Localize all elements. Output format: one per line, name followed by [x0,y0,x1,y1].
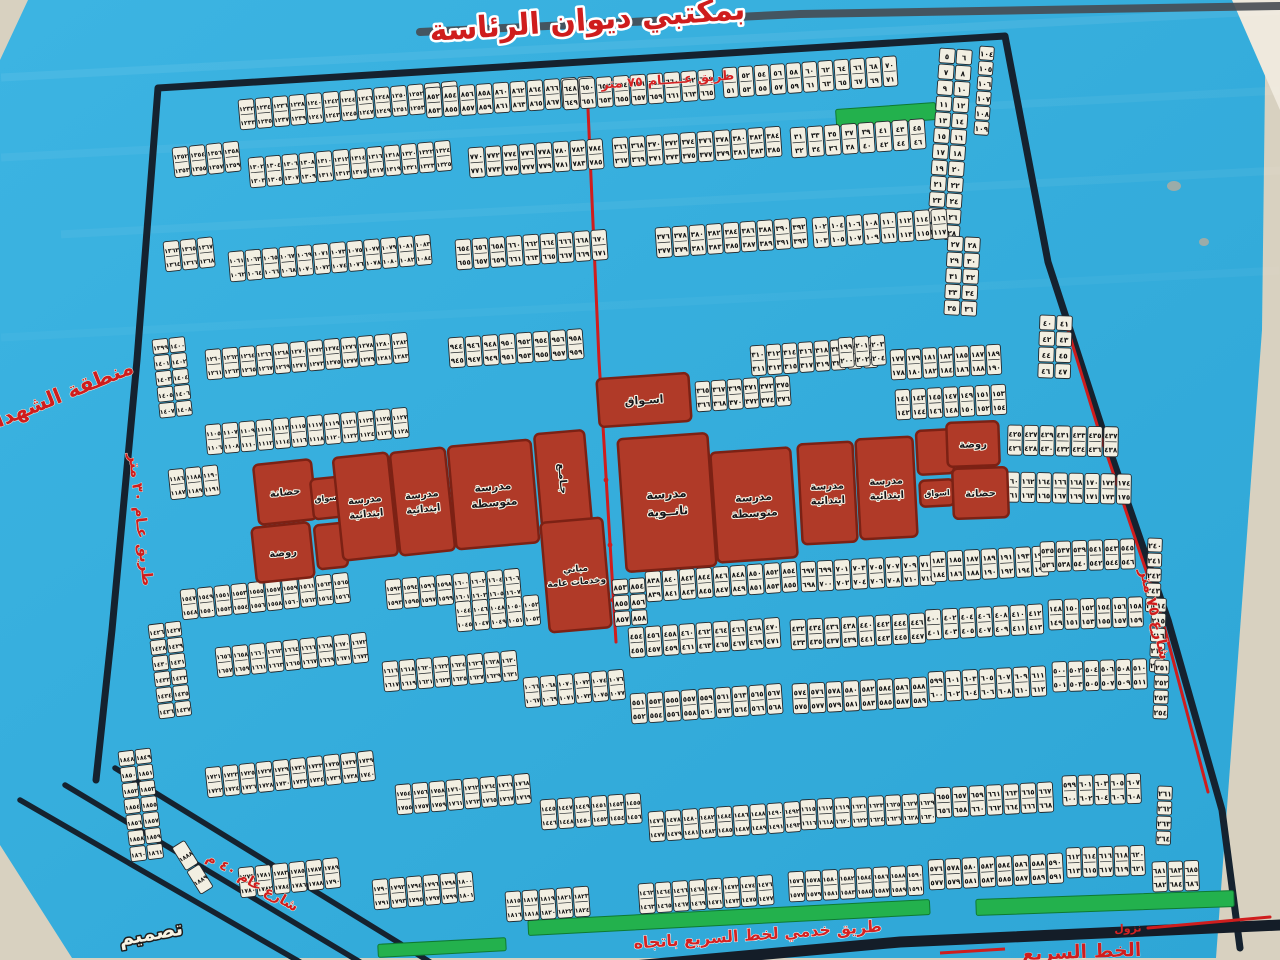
plot-cell: ١٤٢٩ [167,637,184,653]
plot-cell: ٣٧٢٣٧٣ [663,133,680,164]
plot-cell: ٣٧٨٣٧٩ [672,226,689,257]
plot-cell: ٨٥٠٨٥١ [747,564,764,595]
svg-text:١٨٩: ١٨٩ [987,349,1001,359]
plot-cell: ٥٥٥٥٥٦ [664,691,681,722]
svg-text:٣٢: ٣٢ [795,146,805,156]
svg-text:٥٨٧: ٥٨٧ [896,696,910,706]
plot-cell: ٦٠٧٦٠٨ [996,668,1013,699]
svg-text:٦٤٨: ٦٤٨ [564,83,578,93]
svg-text:٨٥١: ٨٥١ [749,582,763,592]
svg-text:٩٥٣: ٩٥٣ [518,351,532,361]
plot-cell: ١٤٧٤١٤٧٥ [740,876,757,907]
svg-text:١٧٠: ١٧٠ [1085,478,1098,487]
plot-cell: ٤٢٥٤٢٦ [1007,425,1022,455]
plot-cell: ١٦٦١٦٧ [1052,473,1067,503]
plot-cell: ١٥٩٤١٥٩٥ [402,577,420,608]
svg-text:١٦١٧: ١٦١٧ [384,681,400,689]
facility-middle-school-2: مدرسةمتوسطة [710,447,797,562]
plot-cell: ١٠٧٠١٠٧١ [557,674,575,705]
plot-cell: ٦٩٧٦٩٨ [800,561,817,592]
svg-text:١٨٦: ١٨٦ [956,364,970,374]
svg-text:١٨٩: ١٨٩ [982,553,996,563]
svg-text:١٧٦٤: ١٧٦٤ [480,783,496,791]
plot-cell: ١٢٥٢١٢٥٣ [407,84,425,115]
plot-cell: ٨٤٠٨٤١ [662,570,679,601]
svg-text:١٨٠١: ١٨٠١ [459,892,474,900]
plot-cell: ٤٣١٤٣٢ [1055,426,1070,456]
plot-cell: ٨٦٠٨٦١ [493,82,510,113]
svg-text:٥٤١: ٥٤١ [1089,544,1102,553]
svg-text:٦٦٤: ٦٦٤ [541,238,555,248]
svg-text:٢٧: ٢٧ [951,240,961,249]
svg-text:٧٧٦: ٧٧٦ [520,148,534,158]
svg-text:٦١٢: ٦١٢ [1032,684,1046,694]
plot-cell: ١٧٣٩١٧٤٠ [357,750,375,781]
plot-cell: ١٧٣٧١٧٣٨ [340,752,358,783]
plot-cell: ١٦١٦١٦١٧ [382,661,400,692]
plot-cell: ٦٥٦٦٥٧ [472,238,489,269]
plot-cell: ١٥١١٥٢ [975,385,991,416]
plot-cell: ٥٨٠٥٨١ [962,857,979,888]
svg-text:٣٦: ٣٦ [964,305,974,314]
svg-text:١٠٦٣: ١٠٦٣ [246,256,262,264]
svg-text:٨٥٥: ٨٥٥ [444,104,458,114]
plot-cell: ٤٣٢٤٣٣ [790,619,807,650]
plot-cell: ٢٥٤ [1153,705,1168,719]
svg-text:١٢٣٦: ١٢٣٦ [273,102,289,110]
svg-text:٦٧١: ٦٧١ [593,248,607,258]
svg-text:٤٢٧: ٤٢٧ [1024,430,1038,439]
svg-text:٦٦٢: ٦٦٢ [524,239,538,249]
plot-cell: ١٧٩١٨٠ [906,348,922,379]
facility-primary-school-1: مدرسةابتدائية [333,452,398,560]
facility-label-market-right: اسواق [924,488,950,498]
plot-cell: ٤٥٦٤٥٧ [645,626,662,657]
plot-cell: ٣٩٠٣٩١ [774,219,791,250]
plot-cell: ١٢٦٢١٢٦٣ [222,347,240,378]
plot-cell: ١٨٦١ [147,843,164,859]
svg-text:١٤٧٤: ١٤٧٤ [740,882,756,890]
svg-text:١٠٨١: ١٠٨١ [398,242,413,250]
plot-cell: ١٨٩١٩٠ [986,344,1002,375]
plot-cell: ١٦٢٠١٦٢١ [416,658,434,689]
plot-cell: ١٠٧٢١٠٧٣ [574,672,592,703]
svg-text:٣١٣: ٣١٣ [768,362,782,372]
svg-text:١٥٧٨: ١٥٧٨ [806,877,822,885]
svg-text:١٢٨١: ١٢٨١ [376,354,391,362]
svg-text:١٤٥١: ١٤٥١ [592,802,607,810]
svg-text:٧٧١: ٧٧١ [470,165,484,175]
plot-cell: ١٤٣٠ [152,655,169,671]
plot-cell: ١٧٢٣١٧٢٤ [222,765,240,796]
svg-text:٨٥٨: ٨٥٨ [632,613,647,623]
svg-text:١٧٩٦: ١٧٩٦ [424,881,440,889]
svg-text:٣٩٠: ٣٩٠ [775,223,789,233]
svg-text:١٤٨٠: ١٤٨٠ [683,815,698,823]
svg-text:١٩٤: ١٩٤ [1017,565,1030,575]
svg-text:٣٨: ٣٨ [846,142,856,152]
svg-text:٧٨١: ٧٨١ [555,160,569,170]
plot-cell: ١٠٥ [978,61,993,76]
plot-cell: ٥٩٩٦٠٠ [928,671,945,702]
plot-cell: ٦٥٤٦٥٥ [455,239,472,270]
plot-cell: ٤٧ [1055,364,1071,379]
svg-text:٥٣٩: ٥٣٩ [1073,545,1087,554]
svg-text:٣٥: ٣٥ [828,129,837,139]
plot-cell: ١٧٣٥١٧٣٦ [323,754,341,785]
svg-text:١٦٢٧: ١٦٢٧ [469,674,485,682]
svg-text:٨٥٦: ٨٥٦ [631,597,646,607]
svg-text:٧٧٧: ٧٧٧ [521,162,535,172]
svg-text:٤٣٥: ٤٣٥ [1088,431,1101,440]
svg-text:٤٦: ٤٦ [913,137,923,147]
plot-cell: ٣١٤٣١٥ [782,343,798,374]
svg-text:٣٧٥: ٣٧٥ [682,151,696,161]
plot-cell: ١٧٨٧١٧٨٨ [306,859,324,890]
plot-cell: ٥٠٨٥٠٩ [1116,659,1131,689]
plot-cell: ١٥٩٦١٥٩٧ [419,576,437,607]
svg-text:١٨٢: ١٨٢ [924,366,938,376]
svg-text:٧٧٤: ٧٧٤ [503,149,517,159]
svg-text:١٠٧٣: ١٠٧٣ [330,248,346,256]
svg-text:٤٠٤: ٤٠٤ [960,612,973,622]
plot-cell: ١٧٦٢١٧٦٣ [463,778,481,809]
svg-text:١٧٦٢: ١٧٦٢ [464,784,480,792]
svg-text:١٤٨٨: ١٤٨٨ [750,810,766,818]
plot-cell: ٨٤٤٨٤٥ [696,567,713,598]
svg-text:١٢٧٧: ١٢٧٧ [343,357,359,365]
svg-text:٣١: ٣١ [949,272,958,281]
plot-cell: ١٦ [950,129,966,145]
svg-text:١٢٨٣: ١٢٨٣ [393,353,409,361]
svg-text:١٨٣: ١٨٣ [931,556,945,566]
svg-text:١٦٠٣: ١٦٠٣ [472,592,488,600]
svg-text:١١١٣: ١١١٣ [274,424,290,432]
svg-text:٤٥: ٤٥ [912,123,921,133]
svg-text:٢٠٤: ٢٠٤ [872,353,886,363]
svg-text:٤٠٧: ٤٠٧ [978,625,992,635]
svg-text:١٨٥: ١٨٥ [948,555,961,565]
plot-cell: ١٤٨٤١٤٨٥ [716,806,733,837]
svg-text:١٥٢: ١٥٢ [977,404,991,414]
svg-text:١٤٤٧: ١٤٤٧ [558,804,574,812]
svg-text:٥٣: ٥٣ [742,84,752,94]
svg-text:٧٨٤: ٧٨٤ [588,143,602,153]
svg-text:٣٨٣: ٣٨٣ [708,242,722,252]
svg-text:١٢٣٨: ١٢٣٨ [290,101,306,109]
svg-text:١٠٥٢: ١٠٥٢ [524,601,540,609]
svg-text:١٢٥١: ١٢٥١ [392,106,407,114]
plot-cell: ٤٣٥٤٣٦ [1087,426,1102,456]
svg-text:٤٢: ٤٢ [879,140,889,150]
plot-cell: ١١٠٧١١٠٨ [222,422,240,453]
plot-cell: ٥٠٤٥٠٥ [1084,660,1099,690]
plot-cell: ١١١٧١١١٨ [307,415,325,446]
svg-text:٩٥٦: ٩٥٦ [551,334,565,344]
svg-text:٣١٧: ٣١٧ [800,360,814,370]
svg-text:١١٠٧: ١١٠٧ [223,429,239,437]
svg-text:١١٢١: ١١٢١ [341,418,356,426]
plot-cell: ١١٠١١١ [880,212,897,243]
svg-text:١٤٧٧: ١٤٧٧ [758,895,774,903]
svg-text:١٥٤: ١٥٤ [993,403,1006,413]
plot-cell: ٥٧٦٥٧٧ [928,859,945,890]
svg-text:١٧٦١: ١٧٦١ [448,800,463,808]
plot-cell: ٢٩ [946,252,962,267]
plot-cell: ١٤٣٦ [158,703,175,719]
plot-cell: ٦٥٠٦٥١ [579,78,596,109]
svg-text:١٧٦٦: ١٧٦٦ [497,781,513,789]
svg-text:٨٤١: ٨٤١ [664,588,678,598]
svg-text:١٠٤٧: ١٠٤٧ [474,620,490,628]
svg-text:١٤٧٧: ١٤٧٧ [650,831,666,839]
svg-text:٤٧١: ٤٧١ [766,636,780,646]
svg-text:٥٨٨: ٥٨٨ [912,681,926,691]
svg-text:٨٦٦: ٨٦٦ [545,83,559,93]
svg-text:٨٥٢: ٨٥٢ [427,91,441,101]
svg-text:١٤٦٩: ١٤٦٩ [691,900,707,908]
plot-cell: ٣٨٢٣٨٣ [706,223,723,254]
plot-cell: ١٨٥٩ [145,827,162,843]
plot-cell: ٤٦٦٤٦٧ [730,620,747,651]
svg-text:١٤٦٥: ١٤٦٥ [657,902,673,910]
plot-cell: ١٤٧٢١٤٧٣ [723,877,740,908]
svg-text:٨٥٩: ٨٥٩ [478,102,492,112]
plot-cell: ١٨٥٣ [139,780,156,796]
svg-text:٥٥٧: ٥٥٧ [682,694,696,704]
svg-text:٦٥٦: ٦٥٦ [473,242,487,252]
plot-cell: ٦٠١٦٠٢ [945,670,962,701]
svg-text:٣٦٩: ٣٦٩ [631,154,645,164]
plot-cell: ٤٧٠٤٧١ [764,617,781,648]
svg-text:٧٧٥: ٧٧٥ [504,163,518,173]
plot-cell: ٤٣٤٤ [892,120,909,151]
plot-cell: ١٦٦٠١٦٦١ [249,643,267,674]
svg-text:٤٣٩: ٤٣٩ [843,635,857,645]
plot-cell: ١٠٧٥١٠٧٦ [347,240,365,271]
svg-text:١٤٥٤: ١٤٥٤ [610,815,626,823]
svg-text:١٠٩: ١٠٩ [974,124,989,134]
exit-ramp-label: نزول [1114,922,1142,936]
plot-cell: ١٦٢١١٦٢٢ [851,797,868,828]
plot-cell: ٥٥٧٥٥٨ [681,689,698,720]
svg-text:١٢٣٣: ١٢٣٣ [240,119,256,127]
svg-text:٦٦٨: ٦٦٨ [575,235,589,245]
svg-text:١٦١٩: ١٦١٩ [401,680,417,688]
svg-text:٣٨١: ٣٨١ [691,243,705,253]
plot-cell: ٣٣٣٤ [807,126,824,157]
svg-text:١١٤: ١١٤ [915,214,929,224]
svg-text:٣٤: ٣٤ [965,289,974,298]
svg-text:٢٩: ٢٩ [950,256,960,265]
plot-cell: ٧٨٠٧٨١ [553,141,570,172]
plot-cell: ١٤٩٢١٤٩٣ [784,801,801,832]
svg-text:٩٥٥: ٩٥٥ [535,350,549,360]
plot-cell: ٢٤٠ [1148,538,1163,552]
svg-text:٥٠٥: ٥٠٥ [1085,679,1098,688]
svg-text:١٧٩٥: ١٧٩٥ [408,896,424,904]
plot-cell: ١٥٠١٥١ [1064,599,1079,629]
plot-cell: ١٣٠٦١٣٠٧ [282,154,300,185]
svg-text:٥٥٨: ٥٥٨ [683,708,697,718]
svg-text:٨٥٠: ٨٥٠ [748,568,762,578]
svg-text:٥٥٤: ٥٥٤ [649,710,663,720]
plot-cell: ٥٤٣٥٤٤ [1104,539,1119,569]
svg-text:١٦٢٩: ١٦٢٩ [486,672,502,680]
plot-cell: ١٠ [954,81,970,97]
svg-text:٧٠٦: ٧٠٦ [870,576,884,586]
svg-text:٣٣: ٣٣ [811,130,821,140]
svg-text:٥٧٦: ٥٧٦ [810,687,824,697]
plot-cell: ٢٤١ [1147,553,1162,567]
plot-cell: ٦٦٦٧ [850,58,866,89]
svg-text:٨٦٣: ٨٦٣ [512,99,526,109]
plot-cell: ١٣٦٣١٣٦٤ [163,240,181,271]
plot-cell: ٥٦١٥٦٢ [715,687,732,718]
plot-cell: ٢٥٢ [1154,675,1169,689]
plot-cell: ١٣٥٤١٣٥٥ [189,145,207,176]
svg-text:٦٦٣: ٦٦٣ [683,89,697,99]
svg-text:١٣١٨: ١٣١٨ [384,151,400,159]
svg-text:١٧: ١٧ [936,148,946,158]
plot-cell: ٦٥٨٦٥٩ [489,237,506,268]
plot-cell: ٤٣٤٤٣٥ [807,618,824,649]
plot-cell: ١٠٦٩١٠٧٠ [296,245,314,276]
svg-text:١٥٧: ١٥٧ [1113,616,1127,625]
plot-cell: ٨٤٦٨٤٧ [713,566,730,597]
svg-text:١٦٣٠: ١٦٣٠ [920,813,935,821]
svg-text:١٤٩٠: ١٤٩٠ [767,809,782,817]
plot-cell: ٤٤ [1038,347,1054,362]
plot-cell: ٣٥٣٦ [824,125,841,156]
svg-text:٥٧٨: ٥٧٨ [827,686,841,696]
plot-cell: ٥٥٩٥٦٠ [698,688,715,719]
svg-text:١٤٥٦: ١٤٥٦ [626,813,642,821]
plot-cell: ١٨٧١٨٨ [970,345,986,376]
svg-text:٨٥٤: ٨٥٤ [443,90,457,100]
svg-text:٩٥١: ٩٥١ [501,352,515,362]
svg-text:٤٥٩: ٤٥٩ [664,643,678,653]
svg-text:١٦٢٥: ١٦٢٥ [885,801,901,809]
svg-text:١٩٢: ١٩٢ [1000,566,1014,576]
svg-text:١٨٣: ١٨٣ [939,351,953,361]
svg-text:٦١١: ٦١١ [1031,670,1044,680]
plot-cell: ١٦٧٠١٦٧١ [333,634,351,665]
plot-cell: ١٧٧١٧٨ [890,349,906,380]
plot-cell: ١٧٣٣١٧٣٤ [306,756,324,787]
plot-cell: ١٠٨١٠٩ [863,213,880,244]
svg-text:١٨١٨: ١٨١٨ [524,910,540,918]
svg-text:١٥٨٨: ١٥٨٨ [890,872,906,880]
svg-text:٦٧: ٦٧ [854,77,864,87]
plot-cell: ١٧٥٨١٧٥٩ [429,781,447,812]
svg-text:١٤٦٦: ١٤٦٦ [673,887,689,895]
svg-text:٣٧١: ٣٧١ [648,153,662,163]
plot-cell: ١٥٥٣١٥٥٤ [231,583,249,614]
plot-cell: ١٤٧٦١٤٧٧ [648,811,665,842]
svg-text:٦٥٠: ٦٥٠ [580,82,594,92]
svg-text:٥٦: ٥٦ [773,68,783,78]
plot-cell: ٥٨٥٩ [786,63,802,94]
svg-text:١١٢: ١١٢ [898,216,912,226]
svg-text:٣٦٧: ٣٦٧ [712,384,726,394]
svg-text:٤٢٨: ٤٢٨ [1024,444,1038,453]
svg-text:٤٤٧: ٤٤٧ [911,631,925,641]
svg-text:١٧٦٥: ١٧٦٥ [482,797,498,805]
svg-text:٦١٧: ٦١٧ [1099,865,1113,874]
plot-cell: ١٥٩٠١٥٩١ [907,865,924,896]
svg-text:١٤٩: ١٤٩ [1049,618,1063,627]
svg-text:٢٠٢: ٢٠٢ [856,354,870,364]
svg-text:١٧٩٠: ١٧٩٠ [373,885,388,893]
svg-text:١٠٥١: ١٠٥١ [508,617,523,625]
svg-text:١٤٦٧: ١٤٦٧ [674,901,690,909]
plot-cell: ١٥٨٨١٥٨٩ [890,866,907,897]
svg-text:٦٠٧: ٦٠٧ [997,672,1011,682]
svg-text:١٠٥: ١٠٥ [831,234,845,244]
svg-text:٤٧٠: ٤٧٠ [765,622,779,632]
svg-text:٣٧٨: ٣٧٨ [715,134,729,144]
plot-cell: ٤٥ [1055,348,1071,363]
svg-text:٥٥٥: ٥٥٥ [665,695,679,705]
svg-text:١٤٧٦: ١٤٧٦ [757,881,773,889]
svg-text:٢٦٤: ٢٦٤ [1156,834,1170,843]
svg-text:١١٢٠: ١١٢٠ [326,434,341,442]
plot-cell: ٥٦٥٧ [770,64,786,95]
svg-text:٨٦٠: ٨٦٠ [494,87,508,97]
plot-cell: ٨٥٣ [612,579,628,595]
svg-text:١٥٨٩: ١٥٨٩ [891,886,907,894]
svg-text:١٤٤٨: ١٤٤٨ [559,818,575,826]
plot-cell: ٥٠٠٥٠١ [1052,661,1067,691]
plot-cell: ١٤٧٨١٤٧٩ [665,810,682,841]
svg-text:١١٣: ١١٣ [899,229,913,239]
plot-cell: ٤٠ [1039,315,1055,330]
plot-cell: ٨٤٢٨٤٣ [679,569,696,600]
svg-text:٦١٦: ٦١٦ [1099,851,1113,860]
svg-text:٤٦: ٤٦ [1041,367,1051,376]
svg-text:٨٤٣: ٨٤٣ [681,587,695,597]
plot-cell: ٩٤٤٩٤٥ [448,337,465,368]
svg-text:٧٠٩: ٧٠٩ [903,560,917,570]
plot-cell: ١٣٥٢١٣٥٣ [172,146,190,177]
plot-cell: ٦٠٣٦٠٤ [1094,774,1109,804]
svg-text:١٠٦٧: ١٠٦٧ [280,253,296,261]
svg-text:٦٥٥: ٦٥٥ [936,792,949,802]
svg-text:١٧٦٧: ١٧٦٧ [499,795,515,803]
plot-cell: ١٦٢٣١٦٢٤ [868,796,885,827]
svg-text:١٥٩٥: ١٥٩٥ [404,598,420,606]
plot-cell: ١٦٨١٦٩ [1068,473,1083,503]
plot-strip: ١٣٦٣١٣٦٤١٣٦٥١٣٦٦١٣٦٧١٣٦٨ [163,237,215,272]
svg-text:١٢٧٣: ١٢٧٣ [309,360,325,368]
svg-text:١١١٧: ١١١٧ [307,421,323,429]
svg-text:١٢٣٥: ١٢٣٥ [257,118,273,126]
svg-text:١٠٧: ١٠٧ [848,233,862,243]
plot-cell: ٥٧٤٥٧٥ [792,683,809,714]
svg-text:٣٨٤: ٣٨٤ [766,131,780,141]
svg-text:٦٦١: ٦٦١ [987,789,1000,799]
plot-cell: ٩٤٦٩٤٧ [465,336,482,367]
plot-cell: ١٣١٢١٣١٣ [333,149,351,180]
svg-text:٤٥: ٤٥ [1059,351,1069,360]
plot-cell: ٤٦٠٤٦١ [679,623,696,654]
plot-cell: ١٣٦٧١٣٦٨ [197,237,215,268]
plot-cell: ٨ [955,65,971,81]
plot-cell: ٦٨١٦٨٢ [1152,861,1167,891]
svg-text:١٤٧٠: ١٤٧٠ [707,885,722,893]
svg-text:٥٩٩: ٥٩٩ [929,676,943,686]
